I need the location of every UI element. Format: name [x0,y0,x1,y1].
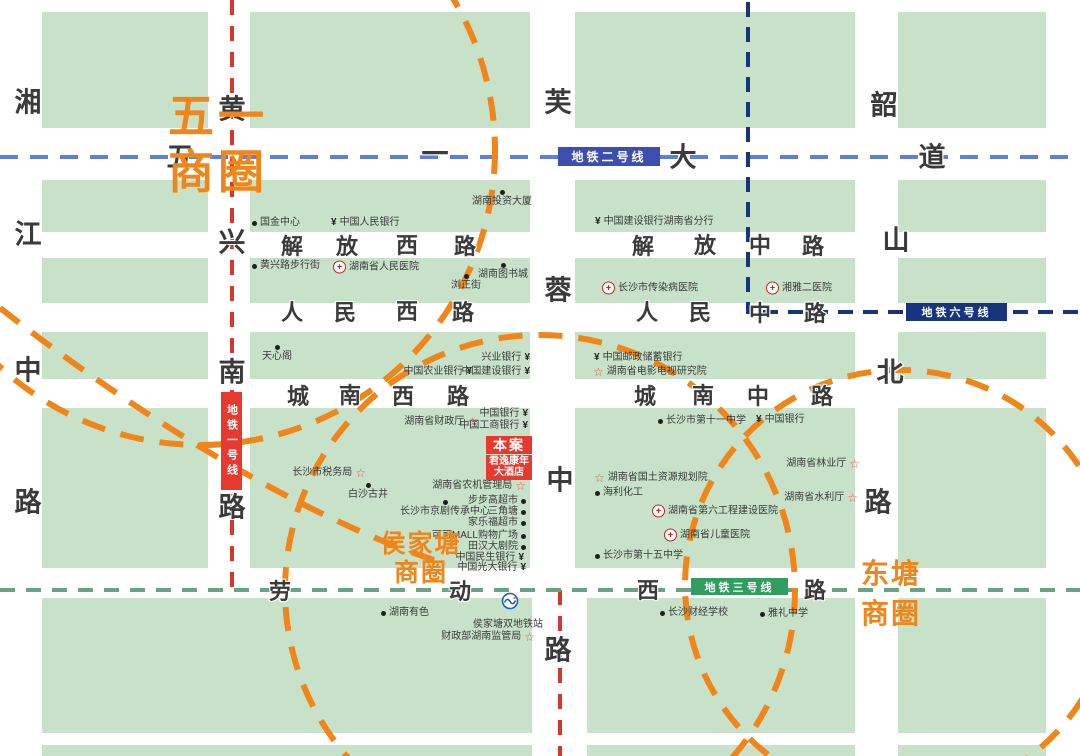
poi: 湖南图书城 [478,263,528,280]
hospital-cross-icon: + [652,505,665,518]
hospital-cross-icon: + [602,282,615,295]
bank-icon: ¥ [522,421,528,431]
star-icon: ☆ [593,366,604,378]
poi-label: 湖南省财政厅 [404,417,464,427]
street-label-char: 劳 [269,574,291,606]
street-label-char: 兴 [219,221,246,260]
poi-label: 天心阁 [262,352,292,362]
star-icon: ☆ [849,458,860,470]
poi: 湖南省农机管理局☆ [432,480,526,492]
poi-label: 湖南省农机管理局 [432,481,512,491]
street-label-char: 路 [452,295,474,327]
poi: 三角塘 [488,507,526,517]
street-label-char: 芙 [545,81,572,120]
poi-dot-icon [521,521,526,526]
street-label-char: 北 [877,351,904,390]
poi: 湖南省林业厅☆ [786,458,860,470]
station-label: 侯家塘双地铁站 [473,615,543,630]
poi-label: 湖南省儿童医院 [680,530,750,540]
poi-label: 长沙市第十一中学 [666,416,746,426]
poi-label: 中国邮政储蓄银行 [603,353,683,363]
poi: 长沙市第十五中学 [595,551,683,561]
poi-dot-icon [366,483,371,488]
poi-label: 湖南图书城 [478,270,528,280]
bank-icon: ¥ [524,367,530,377]
poi: +湘雅二医院 [766,282,832,295]
poi: 湖南有色 [381,608,429,618]
poi: 财政部湖南监管局☆ [441,631,535,643]
metro-logo-icon [501,592,519,610]
poi: +湖南省儿童医院 [664,529,750,542]
street-label-char: 南 [339,378,361,410]
street-label-char: 路 [802,229,824,261]
poi-label: 湖南省林业厅 [786,459,846,469]
poi: 中国银行¥ [479,409,528,419]
project-hotel-line1: 君逸康年 [486,456,532,467]
poi-dot-icon [660,611,665,616]
hospital-cross-icon: + [766,282,779,295]
bank-icon: ¥ [520,563,526,573]
poi: 长沙市京剧传承中心 [400,500,490,517]
poi-label: 湖南省水利厅 [784,493,844,503]
poi-label: 三角塘 [488,507,518,517]
poi-dot-icon [252,221,257,226]
project-tag: 本案 [486,436,532,454]
poi: 长沙市第十一中学 [658,416,746,426]
star-icon: ☆ [355,467,366,479]
houjiatang-title-line2: 商圈 [380,559,461,588]
street-label-char: 路 [447,379,469,411]
poi-label: 长沙市税务局 [292,468,352,478]
street-label-char: 人 [281,295,303,327]
poi-label: 中国工商银行 [459,421,519,431]
street-label-char: 西 [396,228,418,260]
poi-label: 中国建设银行 [461,367,521,377]
project-hotel-line2: 大酒店 [486,467,532,478]
bank-icon: ¥ [522,409,528,419]
bank-icon: ¥ [756,415,762,425]
street-label-char: 民 [689,295,711,327]
poi-label: 中国建设银行湖南省分行 [604,217,714,227]
poi-label: 湖南有色 [389,608,429,618]
metro-line-1-label: 地铁一号线 [221,392,242,490]
street-label-char: 放 [336,229,358,261]
street-label-char: 山 [883,219,910,258]
poi: +湖南省第六工程建设医院 [652,505,778,518]
street-label-char: 韶 [871,84,898,123]
dongtang-business-circle-title: 东塘 商圈 [861,554,921,634]
bank-icon: ¥ [594,353,600,363]
metro-line-2-label: 地铁二号线 [558,147,660,166]
poi-dot-icon [760,612,765,617]
houjiatang-business-circle-title: 侯家塘 商圈 [380,530,461,588]
poi-label: 湖南省第六工程建设医院 [668,506,778,516]
star-icon: ☆ [524,631,535,643]
poi-dot-icon [275,345,280,350]
poi-label: 中国农业银行 [403,367,463,377]
poi: +湖南省人民医院 [333,261,419,274]
poi-label: 中国光大银行 [457,563,517,573]
poi-dot-icon [521,545,526,550]
wuyi-title-line1: 五一 [168,88,268,144]
poi-label: 国金中心 [260,218,300,228]
poi-label: 兴业银行 [481,353,521,363]
poi: 天心阁 [262,345,292,362]
street-label-char: 一 [422,133,449,172]
street-label-char: 中 [15,349,42,388]
poi: 长沙财经学校 [660,608,728,618]
metro-line-6-label: 地铁六号线 [906,303,1007,321]
poi-dot-icon [500,190,505,195]
street-label-char: 路 [454,229,476,261]
street-label-char: 中 [749,296,771,328]
poi: ☆湖南省国土资源规划院 [594,472,708,484]
poi-label: 海利化工 [603,488,643,498]
poi-dot-icon [501,263,506,268]
street-label-char: 城 [287,379,309,411]
metro-line-3-label: 地铁三号线 [691,578,788,595]
poi-dot-icon [521,534,526,539]
street-label-char: 南 [219,351,246,390]
houjiatang-title-line1: 侯家塘 [380,530,461,559]
hospital-cross-icon: + [664,529,677,542]
bank-icon: ¥ [524,353,530,363]
poi-dot-icon [464,274,469,279]
poi-label: 长沙市第十五中学 [603,551,683,561]
city-district-map: 地铁二号线 地铁六号线 地铁三号线 地铁一号线 五一 商圈 侯家塘 商圈 东塘 … [0,0,1080,756]
poi: 家乐福超市 [468,518,526,528]
poi-label: 湖南省人民医院 [349,262,419,272]
poi-dot-icon [521,510,526,515]
poi: 湖南省水利厅☆ [784,492,858,504]
poi: 中国建设银行¥ [461,367,530,377]
poi-label: 长沙市京剧传承中心 [400,507,490,517]
street-label-char: 江 [15,213,42,252]
street-label-char: 中 [547,459,574,498]
poi: 中国光大银行¥ [457,563,526,573]
street-label-char: 路 [15,481,42,520]
street-label-char: 解 [281,229,303,261]
poi-dot-icon [595,491,600,496]
street-label-char: 中 [749,228,771,260]
poi: 浏正街 [451,274,481,291]
poi: 长沙市税务局☆ [292,467,366,479]
star-icon: ☆ [847,492,858,504]
poi-dot-icon [521,499,526,504]
dongtang-title-line2: 商圈 [861,594,921,634]
poi: ¥中国人民银行 [331,218,400,228]
street-label-char: 西 [637,573,659,605]
street-label-char: 湘 [15,81,42,120]
poi-label: 黄兴路步行街 [260,261,320,271]
street-label-char: 路 [804,296,826,328]
poi-label: 财政部湖南监管局 [441,632,521,642]
poi: 海利化工 [595,488,643,498]
poi-label: 湖南省国土资源规划院 [608,473,708,483]
street-label-char: 大 [670,136,697,175]
street-label-char: 道 [919,136,946,175]
poi-dot-icon [658,419,663,424]
street-label-char: 路 [545,629,572,668]
street-label-char: 西 [392,379,414,411]
poi: 白沙古井 [348,483,388,500]
street-label-char: 蓉 [545,269,572,308]
star-icon: ☆ [594,472,605,484]
street-label-char: 解 [632,229,654,261]
poi-label: 长沙市传染病医院 [618,283,698,293]
poi-label: 长沙财经学校 [668,608,728,618]
poi-label: 湖南投资大厦 [472,197,532,207]
poi-label: 雅礼中学 [768,609,808,619]
street-label-char: 路 [219,486,246,525]
map-lines-overlay [0,0,1080,756]
project-hotel-name: 君逸康年 大酒店 [486,455,532,480]
poi-dot-icon [595,554,600,559]
poi-label: 田汉大剧院 [468,542,518,552]
poi-label: 湘雅二医院 [782,283,832,293]
hospital-cross-icon: + [333,261,346,274]
bank-icon: ¥ [331,218,337,228]
street-label-char: 城 [634,379,656,411]
poi: ¥中国邮政储蓄银行 [594,353,683,363]
project-marker: 本案 君逸康年 大酒店 [486,436,532,480]
poi-label: 浏正街 [451,281,481,291]
poi-label: 家乐福超市 [468,518,518,528]
street-label-char: 路 [811,379,833,411]
poi: 田汉大剧院 [468,542,526,552]
poi: 兴业银行¥ [481,353,530,363]
poi-dot-icon [252,264,257,269]
street-label-char: 路 [804,573,826,605]
dongtang-title-line1: 东塘 [861,554,921,594]
street-label-char: 西 [396,294,418,326]
street-label-char: 南 [692,378,714,410]
street-label-char: 中 [747,379,769,411]
poi: 中国工商银行¥ [459,421,528,431]
street-label-char: 放 [694,228,716,260]
poi-dot-icon [381,611,386,616]
wuyi-business-circle-title: 五一 商圈 [168,88,268,200]
poi-dot-icon [443,500,448,505]
star-icon: ☆ [515,480,526,492]
poi: ☆湖南省电影电视研究院 [593,366,707,378]
street-label-char: 民 [334,295,356,327]
street-label-char: 路 [865,481,892,520]
wuyi-circle-ring [0,0,495,445]
poi: ¥中国建设银行湖南省分行 [595,217,714,227]
poi: 湖南投资大厦 [472,190,532,207]
poi-label: 中国人民银行 [340,218,400,228]
poi: +长沙市传染病医院 [602,282,698,295]
poi: 黄兴路步行街 [252,261,320,271]
bank-icon: ¥ [595,217,601,227]
poi-label: 湖南省电影电视研究院 [607,367,707,377]
poi: 雅礼中学 [760,609,808,619]
street-label-char: 人 [636,295,658,327]
poi: 国金中心 [252,218,300,228]
poi-label: 中国银行 [479,409,519,419]
poi-label: 中国银行 [765,415,805,425]
wuyi-title-line2: 商圈 [168,144,268,200]
poi-label: 白沙古井 [348,490,388,500]
poi: ¥中国银行 [756,415,805,425]
